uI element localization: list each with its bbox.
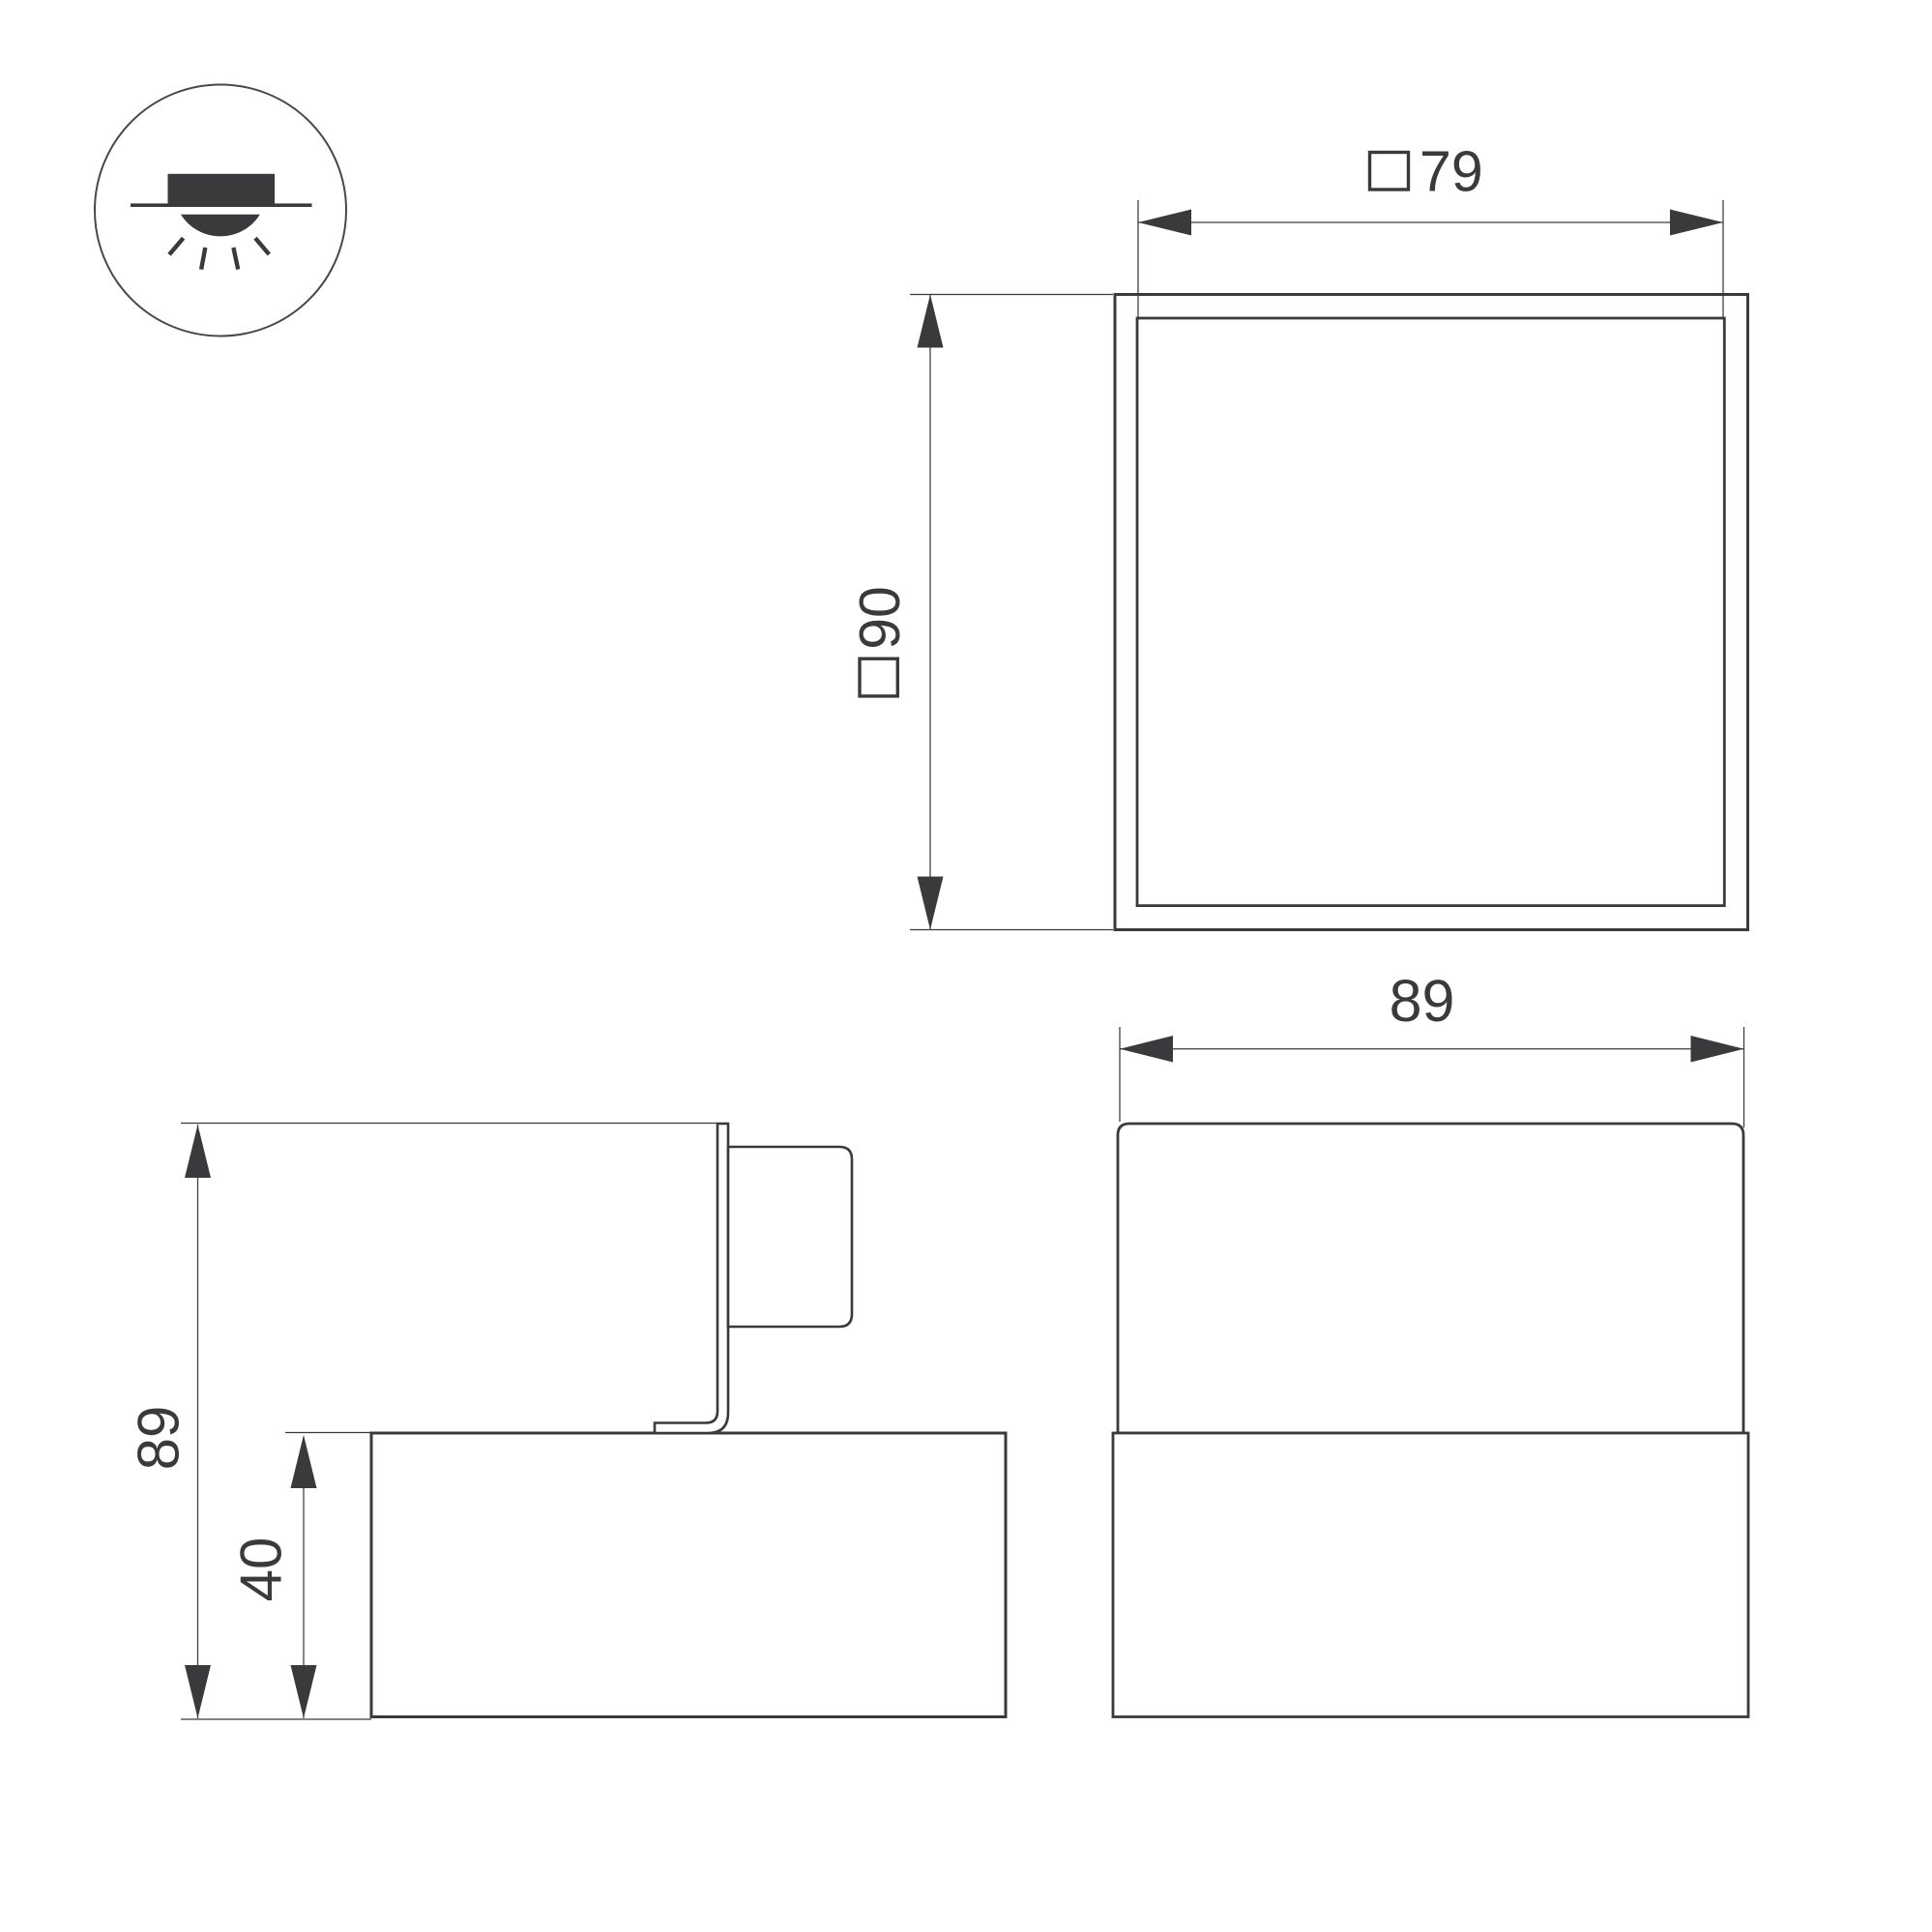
svg-text:89: 89 <box>127 1406 191 1471</box>
svg-text:90: 90 <box>848 586 912 650</box>
svg-text:89: 89 <box>1390 968 1455 1034</box>
svg-text:40: 40 <box>229 1537 294 1602</box>
svg-text:79: 79 <box>1420 140 1483 204</box>
